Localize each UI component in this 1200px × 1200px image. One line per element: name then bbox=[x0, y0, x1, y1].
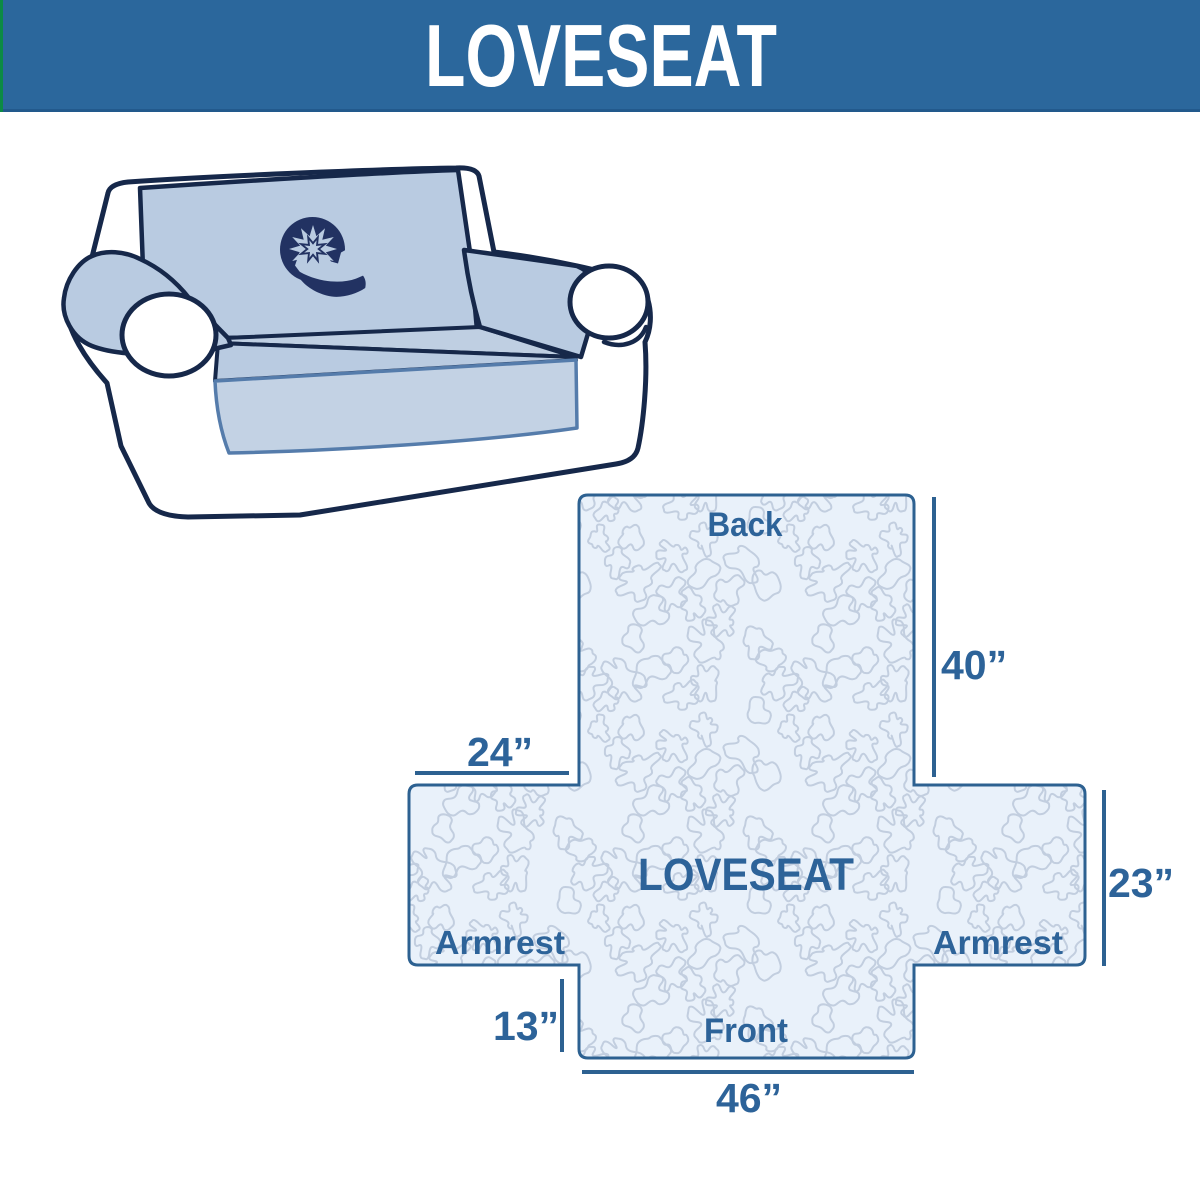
svg-text:23”: 23” bbox=[1108, 860, 1174, 906]
svg-text:24”: 24” bbox=[467, 729, 533, 775]
svg-text:Armrest: Armrest bbox=[933, 924, 1063, 961]
svg-text:40”: 40” bbox=[941, 642, 1007, 688]
svg-text:13”: 13” bbox=[493, 1003, 559, 1049]
svg-text:Front: Front bbox=[704, 1012, 788, 1050]
svg-text:LOVESEAT: LOVESEAT bbox=[425, 6, 777, 105]
svg-text:46”: 46” bbox=[716, 1075, 782, 1121]
svg-text:Armrest: Armrest bbox=[435, 924, 565, 961]
svg-text:Back: Back bbox=[708, 506, 784, 544]
svg-text:LOVESEAT: LOVESEAT bbox=[638, 849, 854, 900]
